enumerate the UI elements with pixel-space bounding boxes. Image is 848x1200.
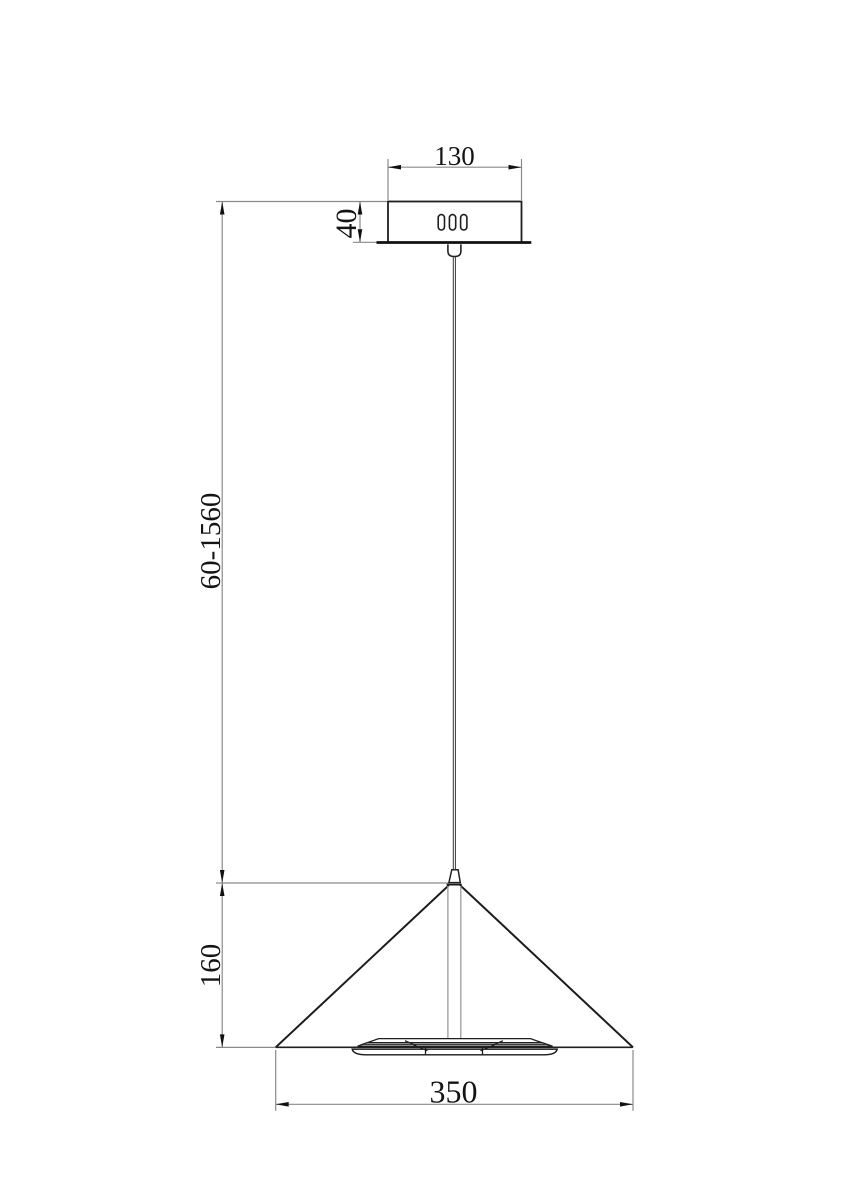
svg-text:40: 40 bbox=[330, 209, 363, 239]
svg-text:350: 350 bbox=[430, 1074, 478, 1110]
svg-text:130: 130 bbox=[434, 141, 475, 171]
svg-text:60-1560: 60-1560 bbox=[195, 493, 227, 590]
svg-text:160: 160 bbox=[195, 944, 227, 988]
